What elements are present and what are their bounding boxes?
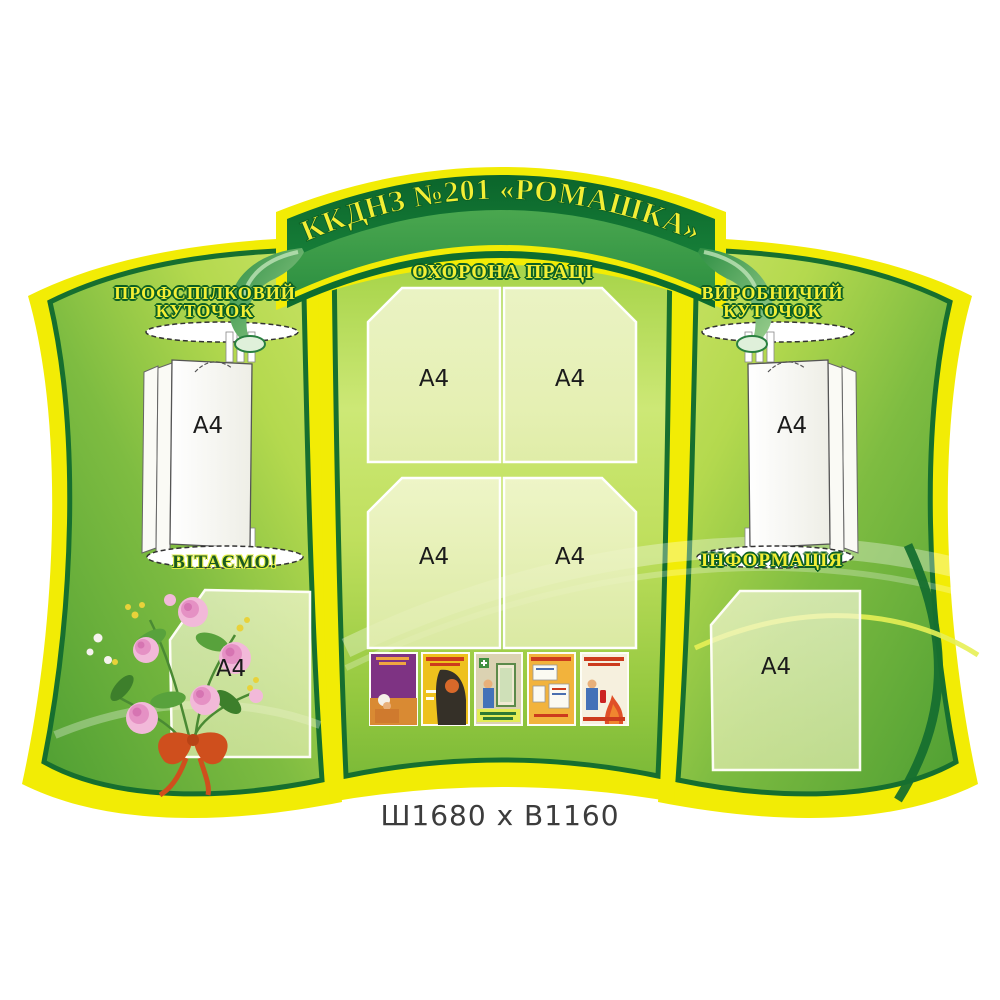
holder-top-bracket	[146, 322, 298, 342]
holder-bottom-base	[697, 546, 853, 568]
worker-head-protection-poster	[370, 653, 417, 725]
info-boards-poster	[528, 653, 575, 725]
holder-bottom-base	[147, 546, 303, 568]
holder-front-page	[748, 360, 830, 548]
holder-front-page	[170, 360, 252, 548]
a4-pocket-top-right	[504, 288, 636, 462]
welding-safety-poster	[422, 653, 469, 725]
stand-graphic: ККДНЗ №201 «РОМАШКА»	[0, 0, 1000, 1000]
stand-product-image: ККДНЗ №201 «РОМАШКА» ПРОФСПІЛКОВИЙ КУТОЧ…	[0, 0, 1000, 1000]
a4-pocket-top-left	[368, 288, 500, 462]
holder-back-pages	[828, 363, 858, 555]
holder-top-bracket	[702, 322, 854, 342]
fire-extinguisher-poster	[581, 653, 628, 725]
holder-back-pages	[142, 363, 172, 555]
safety-posters	[370, 653, 628, 725]
a4-pocket-bottom-left	[368, 478, 500, 648]
first-aid-room-poster	[475, 653, 522, 725]
info-pocket	[711, 591, 860, 770]
a4-pocket-bottom-right	[504, 478, 636, 648]
